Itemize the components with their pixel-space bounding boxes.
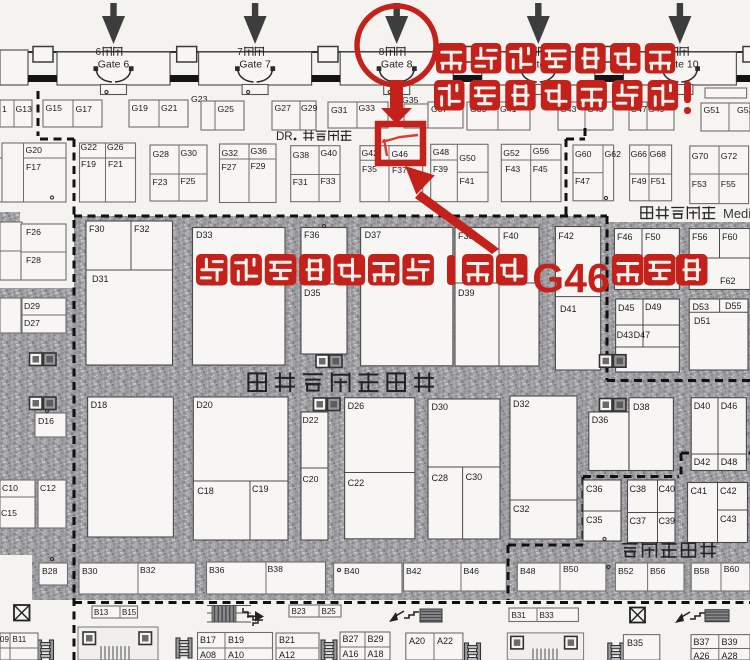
svg-text:G28: G28 [153,149,170,159]
svg-text:C39: C39 [659,516,676,526]
svg-text:D55: D55 [725,301,742,311]
svg-text:A22: A22 [437,636,453,646]
svg-text:G36: G36 [251,146,268,156]
svg-text:D41: D41 [560,304,577,314]
svg-text:F62: F62 [720,276,736,286]
svg-text:A10: A10 [228,650,244,660]
svg-text:C36: C36 [586,484,603,494]
svg-text:F45: F45 [533,164,548,174]
svg-text:F51: F51 [651,176,666,186]
svg-text:C35: C35 [586,515,603,525]
svg-text:F47: F47 [575,176,590,186]
svg-text:7: 7 [237,47,243,58]
svg-text:D18: D18 [91,400,108,410]
svg-text:F53: F53 [692,179,707,189]
svg-text:F49: F49 [632,176,647,186]
svg-text:A16: A16 [343,649,359,659]
svg-text:C10: C10 [2,483,18,493]
svg-text:B11: B11 [13,635,27,644]
svg-text:F40: F40 [503,231,519,241]
svg-text:F46: F46 [617,232,633,242]
svg-text:B29: B29 [368,634,384,644]
svg-text:D33: D33 [196,230,213,240]
svg-text:B58: B58 [694,566,710,576]
svg-text:C28: C28 [432,473,449,483]
svg-text:D48: D48 [721,457,738,467]
svg-text:D38: D38 [633,402,650,412]
svg-text:G66: G66 [631,149,648,159]
svg-text:C40: C40 [659,484,676,494]
svg-text:B36: B36 [209,565,225,575]
svg-text:D31: D31 [92,274,109,284]
svg-text:F25: F25 [181,176,196,186]
svg-text:G13: G13 [16,104,33,114]
svg-text:09: 09 [0,635,9,644]
svg-text:D35: D35 [304,288,321,298]
svg-text:B39: B39 [722,637,738,647]
svg-text:B37: B37 [694,637,710,647]
svg-text:D20: D20 [196,400,213,410]
svg-text:1: 1 [2,104,7,114]
svg-text:B21: B21 [279,635,295,645]
svg-text:G40: G40 [321,148,338,158]
svg-text:C32: C32 [513,504,530,514]
svg-text:C18: C18 [197,486,214,496]
svg-text:F33: F33 [321,176,336,186]
svg-text:G21: G21 [161,103,178,113]
svg-text:G62: G62 [605,149,622,159]
svg-text:F29: F29 [251,161,266,171]
svg-text:B35: B35 [627,638,643,648]
svg-text:D51: D51 [694,316,711,326]
svg-text:B42: B42 [406,566,422,576]
svg-text:B60: B60 [724,564,740,574]
svg-text:A26: A26 [694,651,710,660]
svg-text:D36: D36 [592,415,609,425]
svg-text:B50: B50 [563,564,579,574]
svg-text:G68: G68 [650,149,667,159]
svg-text:G46: G46 [392,149,409,159]
svg-text:D42: D42 [694,457,711,467]
svg-text:F43: F43 [505,164,520,174]
svg-text:A08: A08 [200,650,216,660]
svg-text:D37: D37 [365,230,382,240]
svg-text:B38: B38 [268,564,284,574]
svg-text:D46: D46 [721,401,738,411]
svg-text:8: 8 [379,47,385,58]
svg-text:F32: F32 [134,224,150,234]
svg-text:F17: F17 [26,162,41,172]
svg-text:G29: G29 [301,103,318,113]
svg-text:G15: G15 [46,103,63,113]
svg-text:F19: F19 [81,159,96,169]
svg-text:G52: G52 [503,148,520,158]
svg-text:B23: B23 [292,607,307,616]
svg-text:C43: C43 [720,514,737,524]
svg-text:A28: A28 [722,651,738,660]
svg-text:G25: G25 [218,104,235,114]
svg-text:G32: G32 [222,148,239,158]
svg-text:D27: D27 [24,318,40,328]
svg-text:G70: G70 [692,151,709,161]
svg-text:F21: F21 [108,159,123,169]
svg-text:D49: D49 [645,302,662,312]
svg-text:B56: B56 [650,566,666,576]
svg-text:G27: G27 [275,103,292,113]
svg-text:F60: F60 [722,232,738,242]
svg-text:C42: C42 [720,486,737,496]
svg-text:G48: G48 [433,147,450,157]
svg-text:G19: G19 [132,103,149,113]
svg-text:G53: G53 [737,105,750,115]
svg-text:Gate 8: Gate 8 [381,59,413,71]
svg-text:B13: B13 [94,608,109,617]
svg-text:C19: C19 [252,484,269,494]
svg-text:F39: F39 [433,164,448,174]
svg-text:B19: B19 [228,635,244,645]
svg-text:D32: D32 [513,399,530,409]
svg-text:G26: G26 [107,142,124,152]
svg-text:C37: C37 [630,516,647,526]
svg-text:B17: B17 [200,635,216,645]
svg-text:G31: G31 [331,105,348,115]
svg-text:F31: F31 [293,177,308,187]
svg-text:D26: D26 [348,401,365,411]
svg-text:F23: F23 [153,177,168,187]
svg-text:A20: A20 [409,636,425,646]
svg-text:6: 6 [96,47,102,58]
svg-text:G33: G33 [359,103,376,113]
svg-text:C12: C12 [40,483,56,493]
svg-text:C15: C15 [1,508,17,518]
svg-text:F27: F27 [222,162,237,172]
svg-text:F36: F36 [304,230,320,240]
svg-text:D47: D47 [634,330,651,340]
svg-text:C41: C41 [691,486,708,496]
svg-text:F37: F37 [392,165,407,175]
svg-text:F42: F42 [558,231,574,241]
svg-text:D22: D22 [303,415,319,425]
svg-text:B48: B48 [520,566,536,576]
svg-text:G38: G38 [293,150,310,160]
svg-text:G51: G51 [704,105,721,115]
svg-text:G20: G20 [26,145,43,155]
svg-text:C20: C20 [303,474,319,484]
svg-text:F28: F28 [26,255,41,265]
svg-text:F30: F30 [89,224,105,234]
svg-text:A18: A18 [368,649,384,659]
svg-text:Gate 6: Gate 6 [98,59,130,71]
svg-text:B46: B46 [464,566,480,576]
svg-text:F50: F50 [645,232,661,242]
svg-text:B30: B30 [82,566,98,576]
svg-text:DR: DR [276,131,293,143]
svg-text:F26: F26 [26,227,41,237]
svg-text:A12: A12 [279,650,295,660]
svg-text:G60: G60 [575,149,592,159]
svg-text:B31: B31 [512,611,527,620]
svg-text:D43: D43 [617,330,634,340]
svg-text:D30: D30 [432,402,449,412]
svg-text:F55: F55 [721,179,736,189]
svg-text:D39: D39 [458,288,475,298]
svg-text:D45: D45 [618,303,635,313]
svg-text:G50: G50 [459,153,476,163]
svg-text:G56: G56 [533,146,550,156]
svg-text:Medic: Medic [723,206,750,221]
svg-text:G30: G30 [181,148,198,158]
svg-text:B32: B32 [140,565,156,575]
svg-text:B25: B25 [322,607,337,616]
svg-text:C38: C38 [630,484,647,494]
svg-text:B40: B40 [344,566,360,576]
svg-text:B27: B27 [343,634,359,644]
svg-text:D29: D29 [24,301,40,311]
svg-text:D40: D40 [694,401,711,411]
svg-text:C22: C22 [348,478,365,488]
svg-text:B33: B33 [540,611,555,620]
svg-text:G17: G17 [76,104,93,114]
svg-text:Gate 7: Gate 7 [239,59,271,71]
svg-text:G46: G46 [532,255,610,301]
svg-text:G22: G22 [81,142,98,152]
svg-text:D16: D16 [38,416,54,426]
svg-text:D53: D53 [693,302,710,312]
svg-text:F56: F56 [692,232,708,242]
svg-text:B52: B52 [618,566,634,576]
svg-text:B28: B28 [42,566,58,576]
svg-text:F41: F41 [460,176,475,186]
svg-text:B15: B15 [122,608,137,617]
svg-text:G72: G72 [721,151,738,161]
svg-text:C30: C30 [466,472,483,482]
